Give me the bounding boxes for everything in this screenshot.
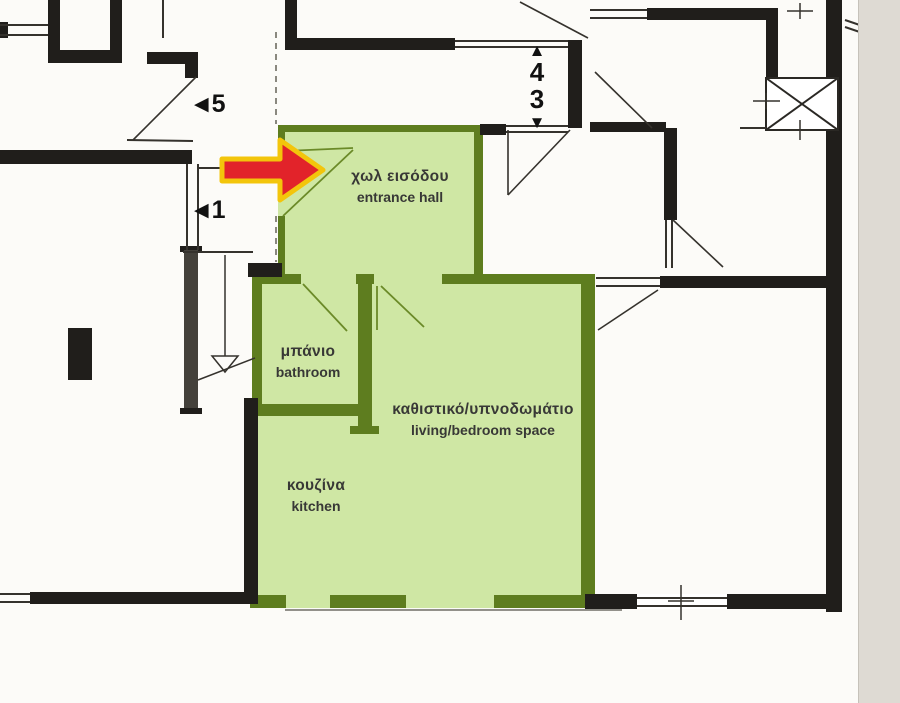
unit-3-number: 3 bbox=[530, 86, 544, 113]
unit-marker-5: ◀ 5 bbox=[194, 92, 226, 117]
down-arrow-icon: ▼ bbox=[529, 114, 546, 131]
unit-4-number: 4 bbox=[530, 59, 544, 86]
unit-5-number: 5 bbox=[212, 92, 226, 117]
unit-marker-1: ◀ 1 bbox=[194, 198, 226, 223]
unit-marker-4-3: ▲ 4 3 ▼ bbox=[513, 42, 561, 131]
floor-plan-drawing bbox=[0, 0, 900, 703]
entrance-hall-area bbox=[278, 125, 482, 282]
shaft-x-box bbox=[766, 78, 838, 130]
main-flat-area bbox=[252, 278, 590, 605]
unit-1-number: 1 bbox=[212, 198, 226, 223]
left-arrow-icon: ◀ bbox=[194, 95, 209, 114]
left-arrow-icon: ◀ bbox=[194, 201, 209, 220]
scan-edge bbox=[858, 0, 900, 703]
floor-plan: χωλ εισόδου entrance hall μπάνιο bathroo… bbox=[0, 0, 900, 703]
